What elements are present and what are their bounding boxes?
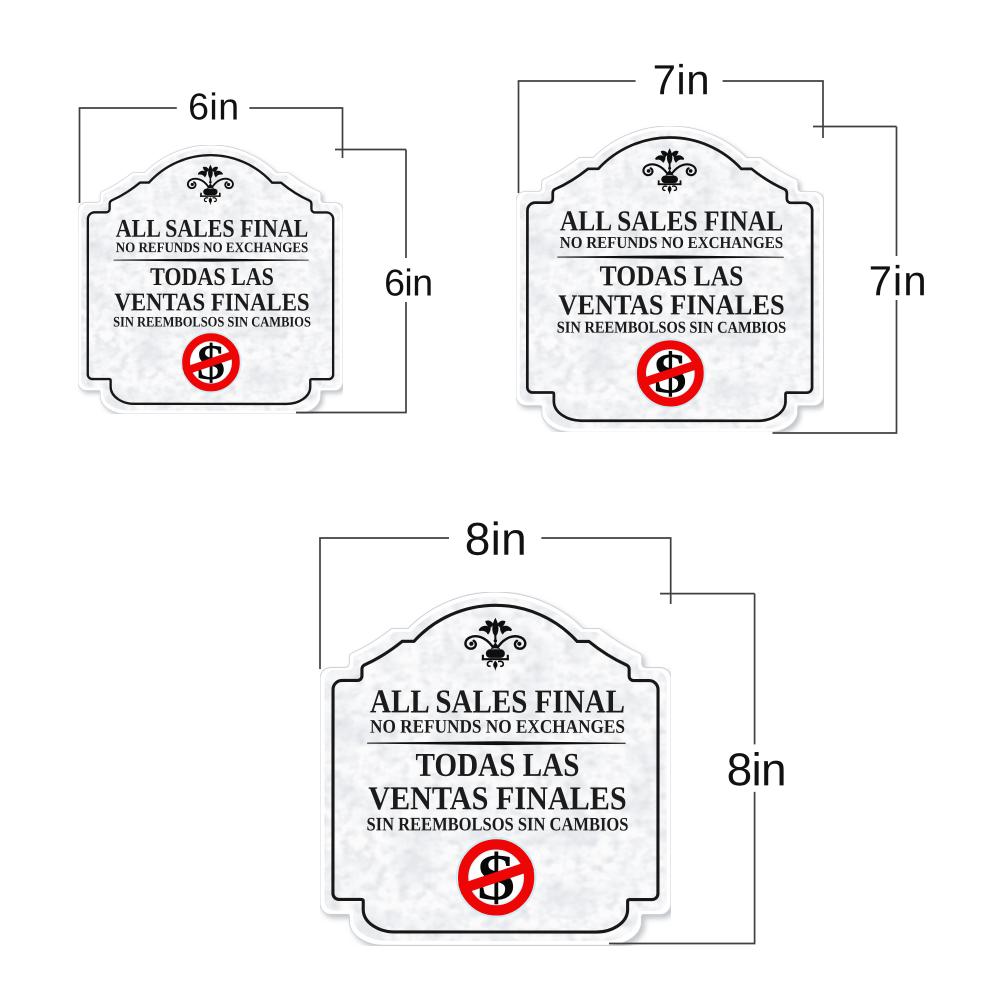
svg-text:6in: 6in — [188, 85, 239, 127]
svg-text:6in: 6in — [384, 261, 433, 303]
svg-text:8in: 8in — [465, 513, 527, 565]
svg-text:7in: 7in — [653, 56, 710, 103]
svg-text:7in: 7in — [869, 257, 927, 304]
svg-text:8in: 8in — [727, 743, 787, 795]
